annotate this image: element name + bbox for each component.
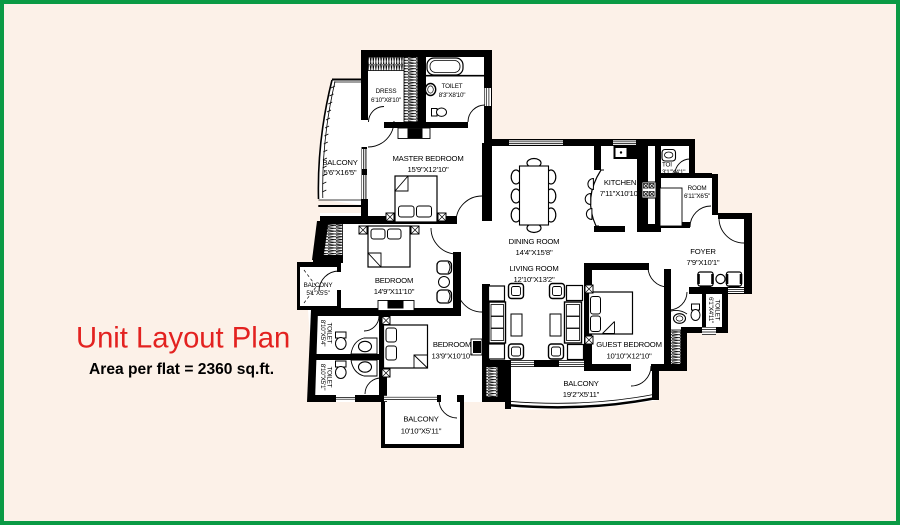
svg-text:BALCONY: BALCONY <box>322 158 357 167</box>
svg-text:LIVING ROOM: LIVING ROOM <box>509 264 558 273</box>
svg-text:7'11"X10'10": 7'11"X10'10" <box>600 189 641 198</box>
svg-text:Area per flat = 2360 sq.ft.: Area per flat = 2360 sq.ft. <box>89 361 274 378</box>
svg-text:5'6"X16'5": 5'6"X16'5" <box>324 168 357 177</box>
svg-text:8'10"X5'1": 8'10"X5'1" <box>319 364 326 391</box>
svg-text:TOILET: TOILET <box>442 83 463 90</box>
svg-text:GUEST BEDROOM: GUEST BEDROOM <box>596 340 662 349</box>
svg-text:FOYER: FOYER <box>690 247 716 256</box>
svg-text:14'4"X15'8": 14'4"X15'8" <box>516 248 553 257</box>
svg-text:14'9"X11'10": 14'9"X11'10" <box>374 287 415 296</box>
svg-text:DRESS: DRESS <box>376 88 397 95</box>
svg-text:8'10"X5'4": 8'10"X5'4" <box>319 320 326 347</box>
svg-text:KITCHEN: KITCHEN <box>604 178 636 187</box>
svg-text:BALCONY: BALCONY <box>563 379 598 388</box>
svg-text:ROOM: ROOM <box>688 185 707 192</box>
svg-text:BALCONY: BALCONY <box>304 282 334 289</box>
svg-text:DINING ROOM: DINING ROOM <box>509 237 560 246</box>
svg-text:6'10"X8'10": 6'10"X8'10" <box>371 97 401 104</box>
svg-text:MASTER BEDROOM: MASTER BEDROOM <box>392 154 463 163</box>
svg-text:10'10"X12'10": 10'10"X12'10" <box>606 352 652 361</box>
svg-text:BEDROOM: BEDROOM <box>433 340 471 349</box>
svg-text:10'10"X5'11": 10'10"X5'11" <box>401 427 442 436</box>
svg-text:Unit Layout Plan: Unit Layout Plan <box>76 323 290 355</box>
svg-text:6'11"X6'5": 6'11"X6'5" <box>684 193 710 200</box>
svg-text:8'3"X8'10": 8'3"X8'10" <box>439 92 466 99</box>
svg-text:BALCONY: BALCONY <box>403 415 438 424</box>
svg-text:15'9"X12'10": 15'9"X12'10" <box>407 165 449 174</box>
svg-text:3'1"X4'1": 3'1"X4'1" <box>662 169 685 176</box>
svg-text:19'2"X5'11": 19'2"X5'11" <box>563 390 600 399</box>
svg-text:13'9"X10'10": 13'9"X10'10" <box>431 352 473 361</box>
svg-text:12'10"X13'2": 12'10"X13'2" <box>513 275 555 284</box>
svg-text:6'1"X4'11": 6'1"X4'11" <box>707 297 714 323</box>
svg-text:TOI: TOI <box>662 162 672 169</box>
svg-text:7'9"X10'1": 7'9"X10'1" <box>687 258 720 267</box>
svg-text:5'1"X5'5": 5'1"X5'5" <box>306 290 329 297</box>
svg-text:BEDROOM: BEDROOM <box>375 276 413 285</box>
